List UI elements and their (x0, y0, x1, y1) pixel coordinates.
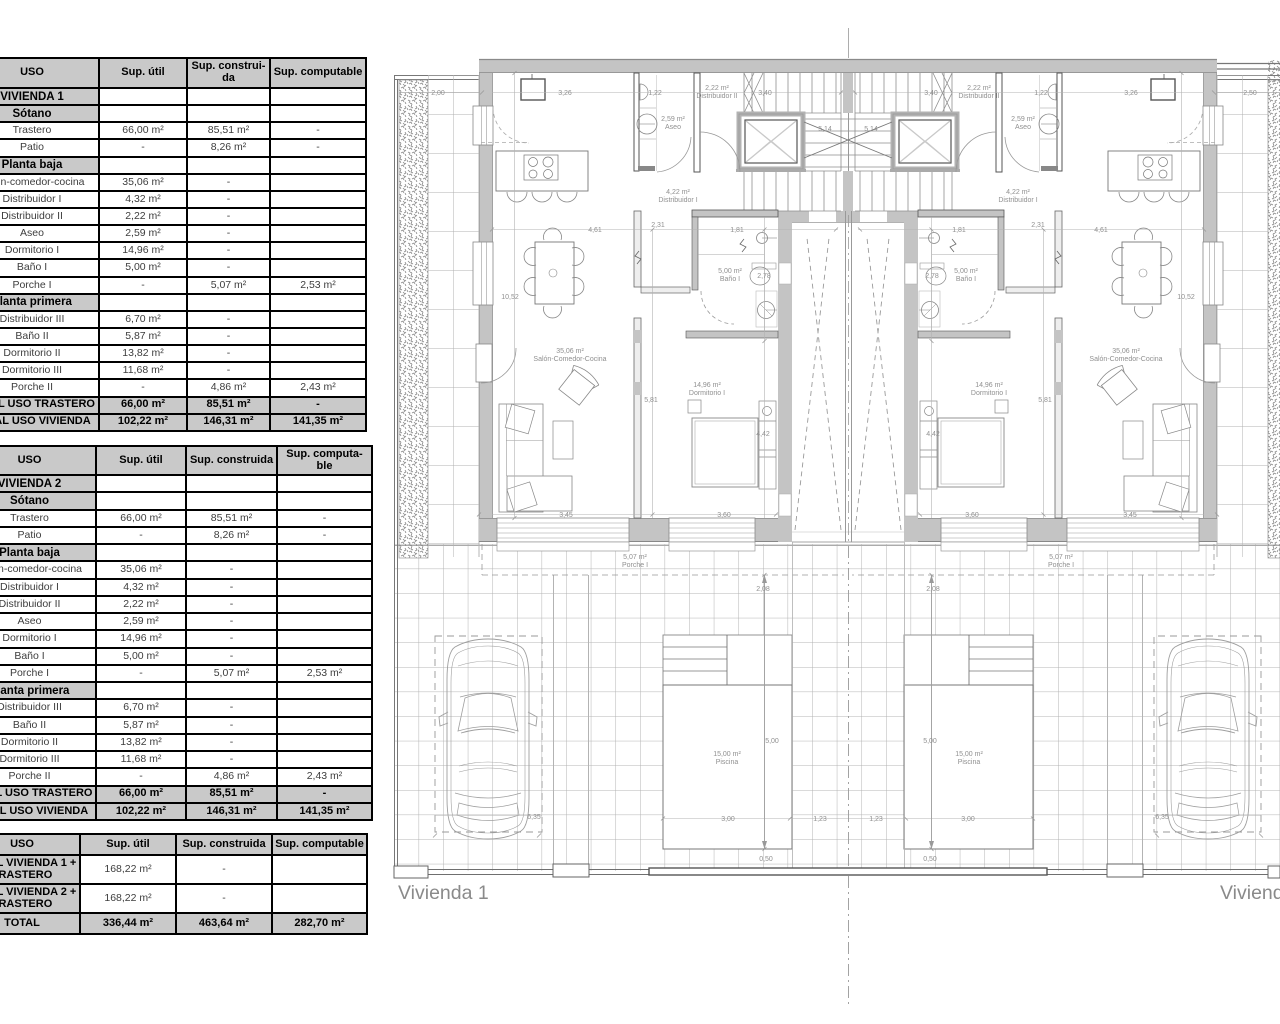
svg-text:Baño I: Baño I (720, 276, 740, 283)
svg-text:Salón-Comedor-Cocina: Salón-Comedor-Cocina (533, 356, 606, 363)
svg-text:0,50: 0,50 (759, 856, 773, 863)
svg-text:2,31: 2,31 (651, 222, 665, 229)
svg-text:3,40: 3,40 (758, 90, 772, 97)
svg-text:10,52: 10,52 (1177, 294, 1195, 301)
svg-text:14,96 m²: 14,96 m² (975, 382, 1003, 389)
svg-text:5,81: 5,81 (644, 397, 658, 404)
svg-text:2,08: 2,08 (926, 586, 940, 593)
svg-text:5,00: 5,00 (765, 738, 779, 745)
svg-text:Vivienda 1: Vivienda 1 (398, 882, 489, 904)
svg-text:5,00 m²: 5,00 m² (718, 268, 742, 275)
svg-text:5,07 m²: 5,07 m² (1049, 554, 1073, 561)
svg-text:15,00 m²: 15,00 m² (713, 751, 741, 758)
svg-text:Dormitorio I: Dormitorio I (971, 390, 1007, 397)
svg-text:Distribuidor I: Distribuidor I (998, 197, 1037, 204)
svg-text:14,96 m²: 14,96 m² (693, 382, 721, 389)
svg-text:2,78: 2,78 (925, 273, 939, 280)
svg-text:Aseo: Aseo (1015, 124, 1031, 131)
svg-text:1,81: 1,81 (952, 227, 966, 234)
svg-text:1,22: 1,22 (1034, 90, 1048, 97)
svg-text:2,50: 2,50 (1243, 90, 1257, 97)
svg-text:4,42: 4,42 (926, 431, 940, 438)
svg-text:Aseo: Aseo (665, 124, 681, 131)
svg-text:3,40: 3,40 (924, 90, 938, 97)
svg-text:5,00 m²: 5,00 m² (954, 268, 978, 275)
svg-text:Dormitorio I: Dormitorio I (689, 390, 725, 397)
svg-text:1,81: 1,81 (730, 227, 744, 234)
svg-text:Vivienda 2: Vivienda 2 (1220, 882, 1280, 904)
svg-text:Porche I: Porche I (1048, 562, 1074, 569)
svg-text:2,31: 2,31 (1031, 222, 1045, 229)
svg-text:3,45: 3,45 (559, 512, 573, 519)
svg-text:Distribuidor II: Distribuidor II (696, 93, 737, 100)
svg-text:5,81: 5,81 (1038, 397, 1052, 404)
svg-text:2,59 m²: 2,59 m² (1011, 116, 1035, 123)
svg-text:5,00: 5,00 (923, 738, 937, 745)
svg-text:5,14: 5,14 (818, 126, 832, 133)
svg-text:2,22 m²: 2,22 m² (967, 85, 991, 92)
svg-text:2,08: 2,08 (756, 586, 770, 593)
svg-text:0,50: 0,50 (923, 856, 937, 863)
svg-text:6,35: 6,35 (527, 814, 541, 821)
svg-text:Piscina: Piscina (716, 759, 739, 766)
svg-text:3,45: 3,45 (1123, 512, 1137, 519)
svg-text:35,06 m²: 35,06 m² (556, 348, 584, 355)
svg-text:4,61: 4,61 (588, 227, 602, 234)
svg-text:4,22 m²: 4,22 m² (666, 189, 690, 196)
svg-text:3,26: 3,26 (558, 90, 572, 97)
svg-text:3,60: 3,60 (717, 512, 731, 519)
svg-text:4,61: 4,61 (1094, 227, 1108, 234)
svg-text:4,22 m²: 4,22 m² (1006, 189, 1030, 196)
svg-text:1,22: 1,22 (648, 90, 662, 97)
svg-text:Piscina: Piscina (958, 759, 981, 766)
svg-text:3,00: 3,00 (961, 816, 975, 823)
svg-text:Salón-Comedor-Cocina: Salón-Comedor-Cocina (1089, 356, 1162, 363)
svg-text:Distribuidor I: Distribuidor I (658, 197, 697, 204)
svg-text:5,07 m²: 5,07 m² (623, 554, 647, 561)
svg-text:2,00: 2,00 (431, 90, 445, 97)
svg-text:5,14: 5,14 (864, 126, 878, 133)
svg-text:15,00 m²: 15,00 m² (955, 751, 983, 758)
svg-text:2,22 m²: 2,22 m² (705, 85, 729, 92)
svg-text:3,26: 3,26 (1124, 90, 1138, 97)
svg-text:4,42: 4,42 (756, 431, 770, 438)
svg-text:Distribuidor II: Distribuidor II (958, 93, 999, 100)
svg-text:Porche I: Porche I (622, 562, 648, 569)
svg-text:35,06 m²: 35,06 m² (1112, 348, 1140, 355)
svg-text:2,78: 2,78 (757, 273, 771, 280)
svg-text:1,23: 1,23 (869, 816, 883, 823)
svg-text:3,00: 3,00 (721, 816, 735, 823)
svg-text:1,23: 1,23 (813, 816, 827, 823)
svg-text:3,60: 3,60 (965, 512, 979, 519)
svg-text:10,52: 10,52 (501, 294, 519, 301)
svg-text:Baño I: Baño I (956, 276, 976, 283)
svg-text:2,59 m²: 2,59 m² (661, 116, 685, 123)
svg-text:6,35: 6,35 (1155, 814, 1169, 821)
